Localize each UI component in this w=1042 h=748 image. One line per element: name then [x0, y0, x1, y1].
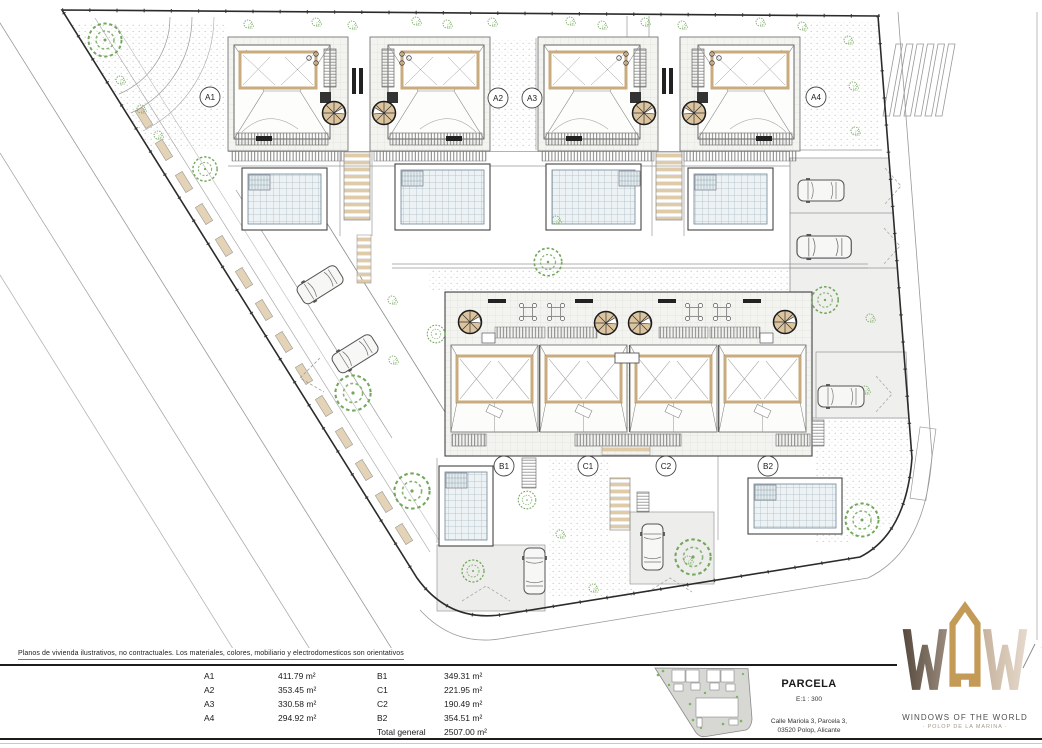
svg-text:A2: A2 — [493, 94, 503, 103]
pool-a4 — [688, 168, 773, 230]
parcela-title: PARCELA — [744, 678, 874, 690]
villa-a3 — [538, 37, 658, 161]
villa-a2 — [370, 37, 490, 161]
footer-rule-bottom-gray — [0, 743, 1042, 744]
parcela-address: Calle Mariola 3, Parcela 3, 03520 Polop,… — [744, 718, 874, 735]
parcela-scale: E:1 : 300 — [744, 696, 874, 703]
footer-rule-top — [0, 664, 897, 666]
table-row: A3330.58 m² — [204, 697, 316, 711]
house-b2-roof — [719, 345, 806, 432]
svg-text:B2: B2 — [763, 462, 773, 471]
unit-label-a3: A3 — [522, 88, 542, 108]
svg-text:A3: A3 — [527, 94, 537, 103]
car — [640, 524, 665, 570]
logo-tagline-text: · POLOP DE LA MARINA · — [893, 724, 1037, 730]
table-row: A1411.79 m² — [204, 669, 316, 683]
house-b1-roof — [451, 345, 538, 432]
minimap — [653, 666, 755, 740]
house-c2-roof — [630, 345, 717, 432]
pool-a1 — [242, 168, 327, 230]
car — [798, 178, 844, 203]
table-row: C1221.95 m² — [377, 683, 487, 697]
unit-label-a4: A4 — [806, 87, 826, 107]
car — [329, 331, 381, 376]
svg-text:B1: B1 — [499, 462, 509, 471]
pool-b2 — [748, 478, 842, 534]
villa-a4 — [680, 37, 800, 161]
logo-brand-text: WINDOWS OF THE WORLD — [893, 713, 1037, 722]
table-row: C2190.49 m² — [377, 697, 487, 711]
unit-label-a2: A2 — [488, 88, 508, 108]
table-row: B2354.51 m² — [377, 711, 487, 725]
house-c1-roof — [540, 345, 627, 432]
svg-text:C2: C2 — [661, 462, 672, 471]
unit-label-b2: B2 — [758, 456, 778, 476]
car — [522, 548, 547, 594]
area-table-col1: A1411.79 m² A2353.45 m² A3330.58 m² A429… — [204, 669, 316, 725]
wow-logo-icon — [901, 598, 1029, 693]
logo-slash-decoration — [1018, 638, 1040, 672]
unit-label-c2: C2 — [656, 456, 676, 476]
villa-a1 — [228, 37, 348, 161]
svg-text:C1: C1 — [583, 462, 594, 471]
table-row: A4294.92 m² — [204, 711, 316, 725]
table-row: A2353.45 m² — [204, 683, 316, 697]
disclaimer-text: Planos de vivienda ilustrativos, no cont… — [18, 650, 404, 660]
car — [818, 384, 864, 409]
parcela-info: PARCELA E:1 : 300 Calle Mariola 3, Parce… — [744, 678, 874, 735]
area-table-col2: B1349.31 m² C1221.95 m² C2190.49 m² B235… — [377, 669, 487, 739]
car — [797, 234, 851, 260]
pool-a2 — [395, 164, 490, 230]
table-row: B1349.31 m² — [377, 669, 487, 683]
pool-b1 — [439, 466, 493, 546]
car — [294, 262, 346, 307]
site-plan-sheet: A1 A2 A3 A4 B1 C1 C2 B2 Planos de vivien… — [0, 0, 1042, 748]
site-plan-drawing: A1 A2 A3 A4 B1 C1 C2 B2 — [0, 0, 1042, 648]
crosswalk — [883, 44, 955, 116]
table-row-total: Total general2507.00 m² — [377, 725, 487, 739]
unit-label-b1: B1 — [494, 456, 514, 476]
street-parking-marker — [910, 427, 936, 501]
unit-label-c1: C1 — [578, 456, 598, 476]
svg-text:A1: A1 — [205, 93, 215, 102]
svg-text:A4: A4 — [811, 93, 821, 102]
footer-rule-bottom — [0, 738, 1042, 740]
unit-label-a1: A1 — [200, 87, 220, 107]
